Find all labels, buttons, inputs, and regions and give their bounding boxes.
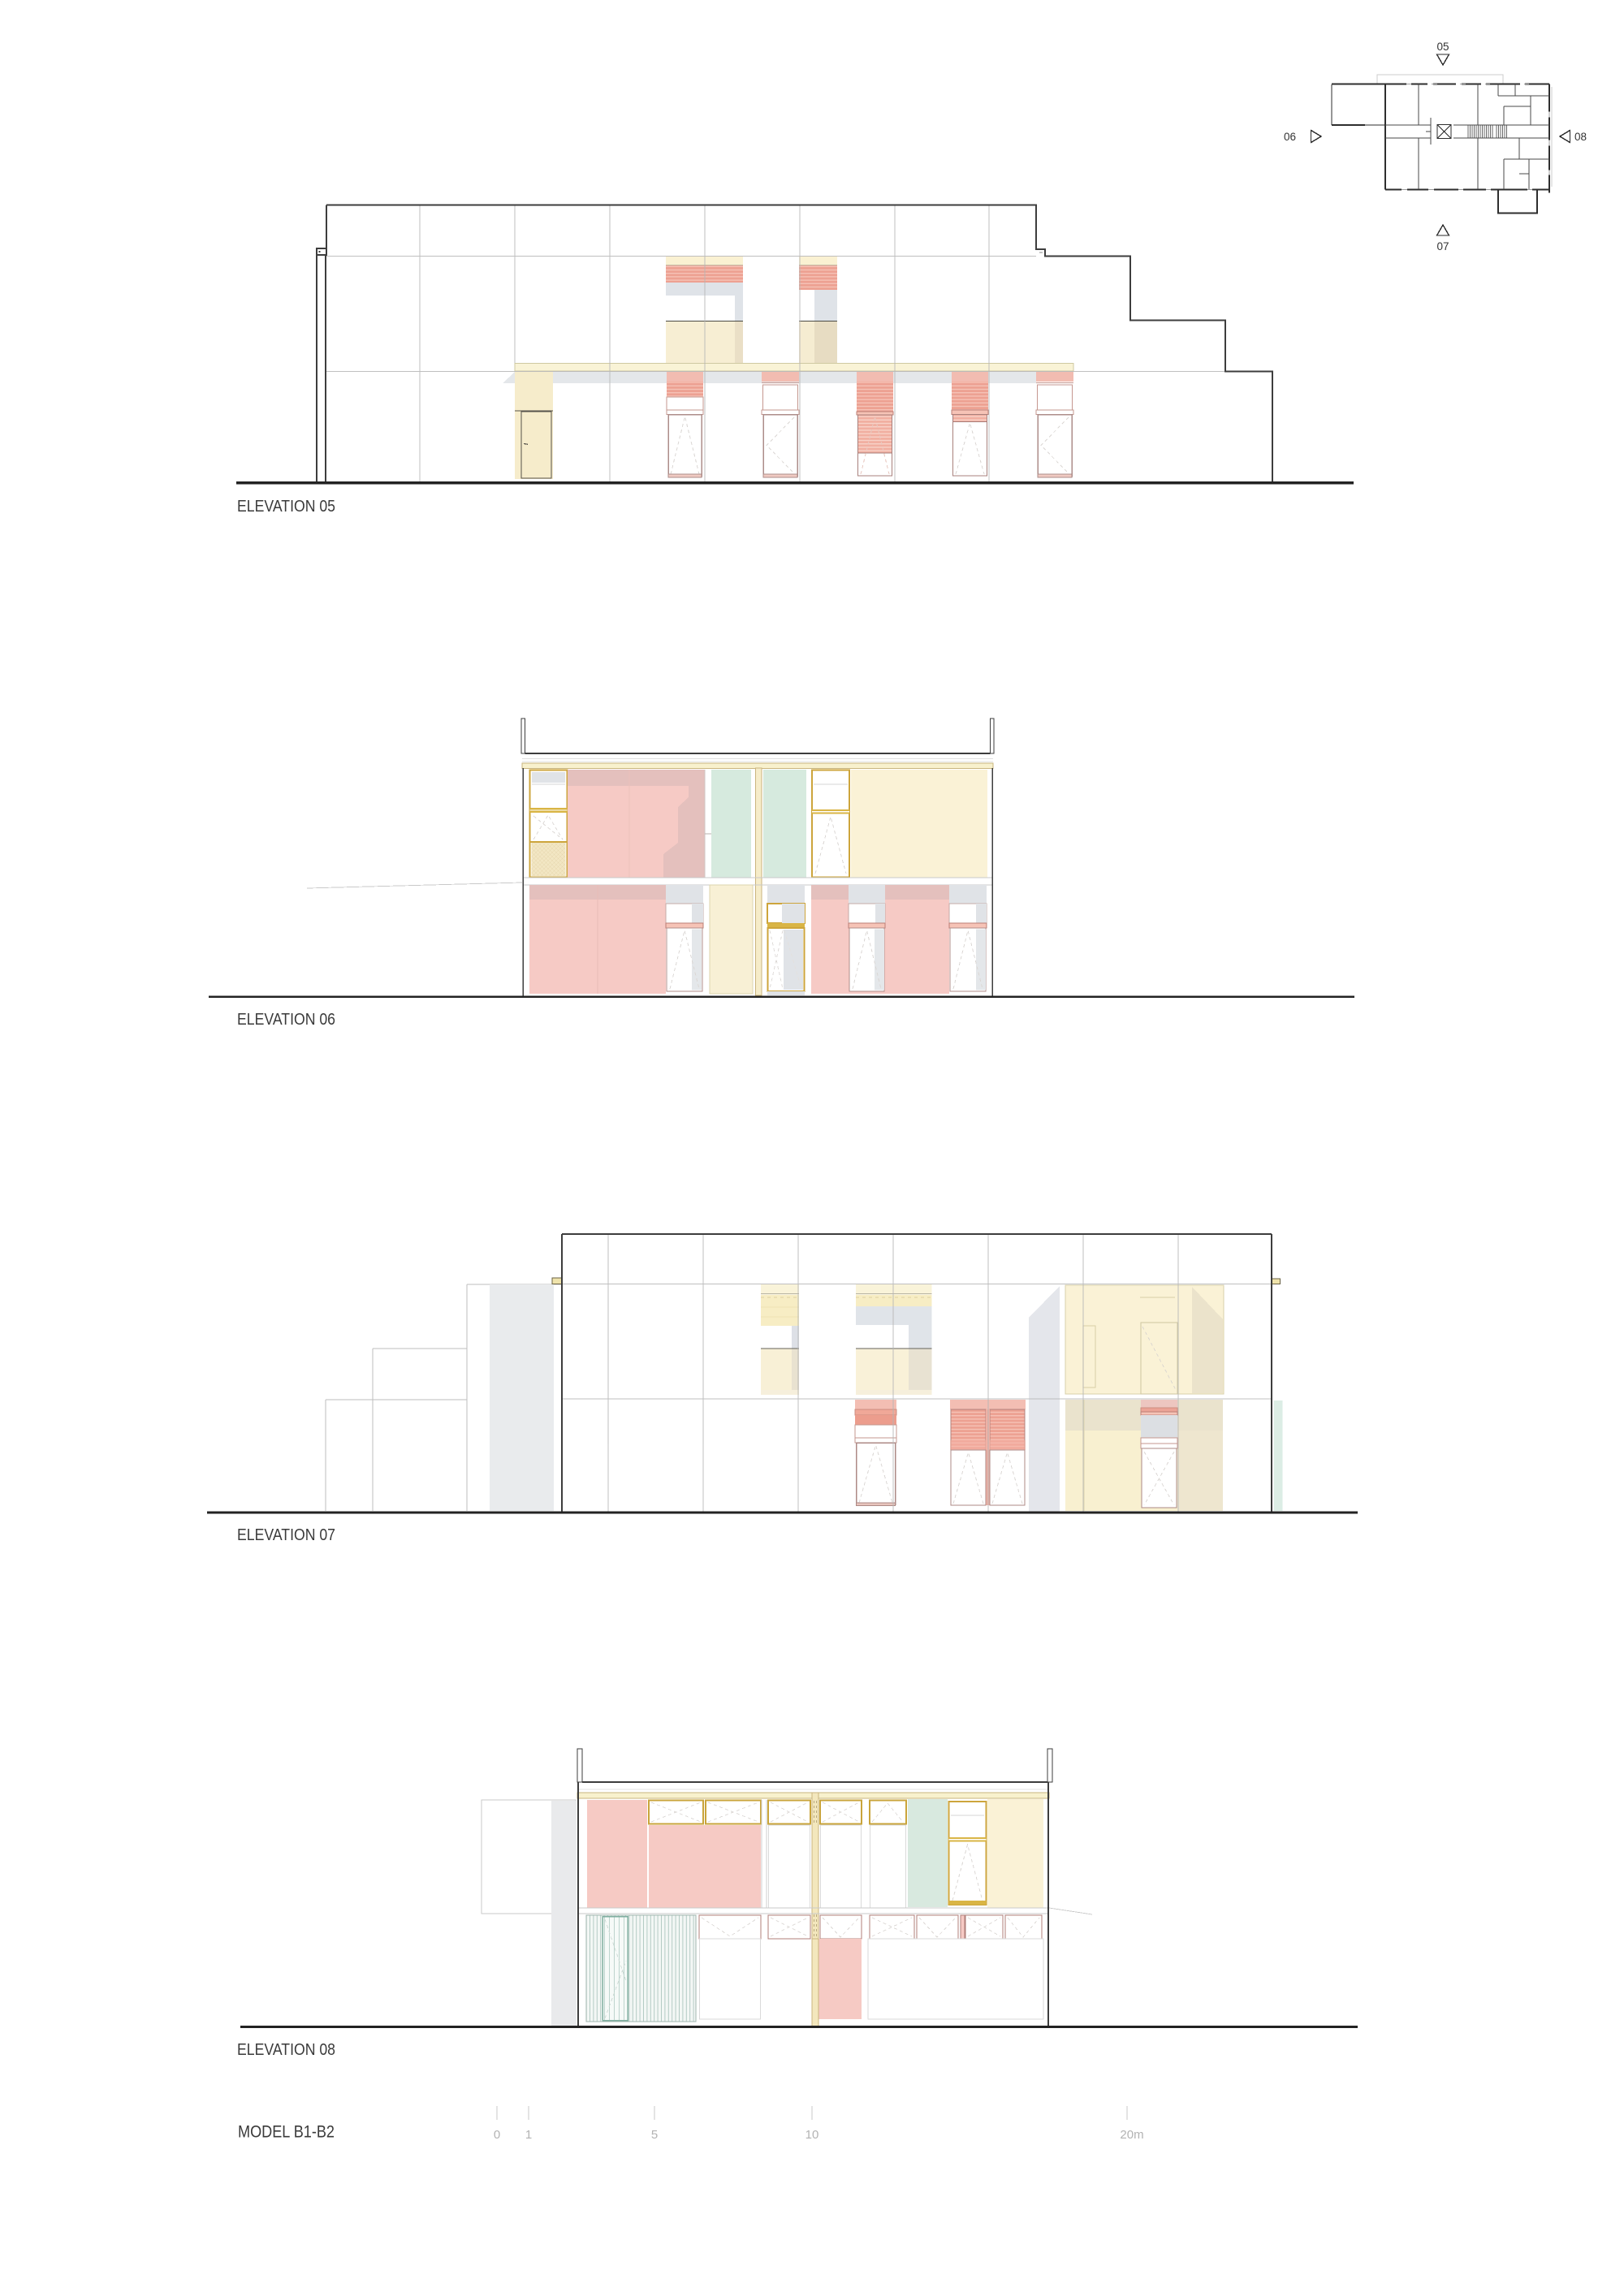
svg-text:ELEVATION 05: ELEVATION 05 bbox=[237, 497, 335, 516]
svg-text:08: 08 bbox=[1574, 131, 1587, 143]
svg-text:06: 06 bbox=[1284, 131, 1296, 143]
svg-text:0: 0 bbox=[494, 2128, 500, 2142]
svg-text:07: 07 bbox=[1436, 240, 1449, 252]
svg-text:1: 1 bbox=[525, 2128, 532, 2142]
svg-text:20m: 20m bbox=[1120, 2128, 1143, 2142]
svg-text:ELEVATION 07: ELEVATION 07 bbox=[237, 1526, 335, 1544]
svg-text:ELEVATION 06: ELEVATION 06 bbox=[237, 1010, 335, 1029]
svg-text:5: 5 bbox=[651, 2128, 658, 2142]
svg-text:05: 05 bbox=[1436, 41, 1449, 53]
svg-text:10: 10 bbox=[806, 2128, 819, 2142]
svg-text:ELEVATION 08: ELEVATION 08 bbox=[237, 2040, 335, 2059]
svg-text:MODEL B1-B2: MODEL B1-B2 bbox=[238, 2122, 335, 2142]
